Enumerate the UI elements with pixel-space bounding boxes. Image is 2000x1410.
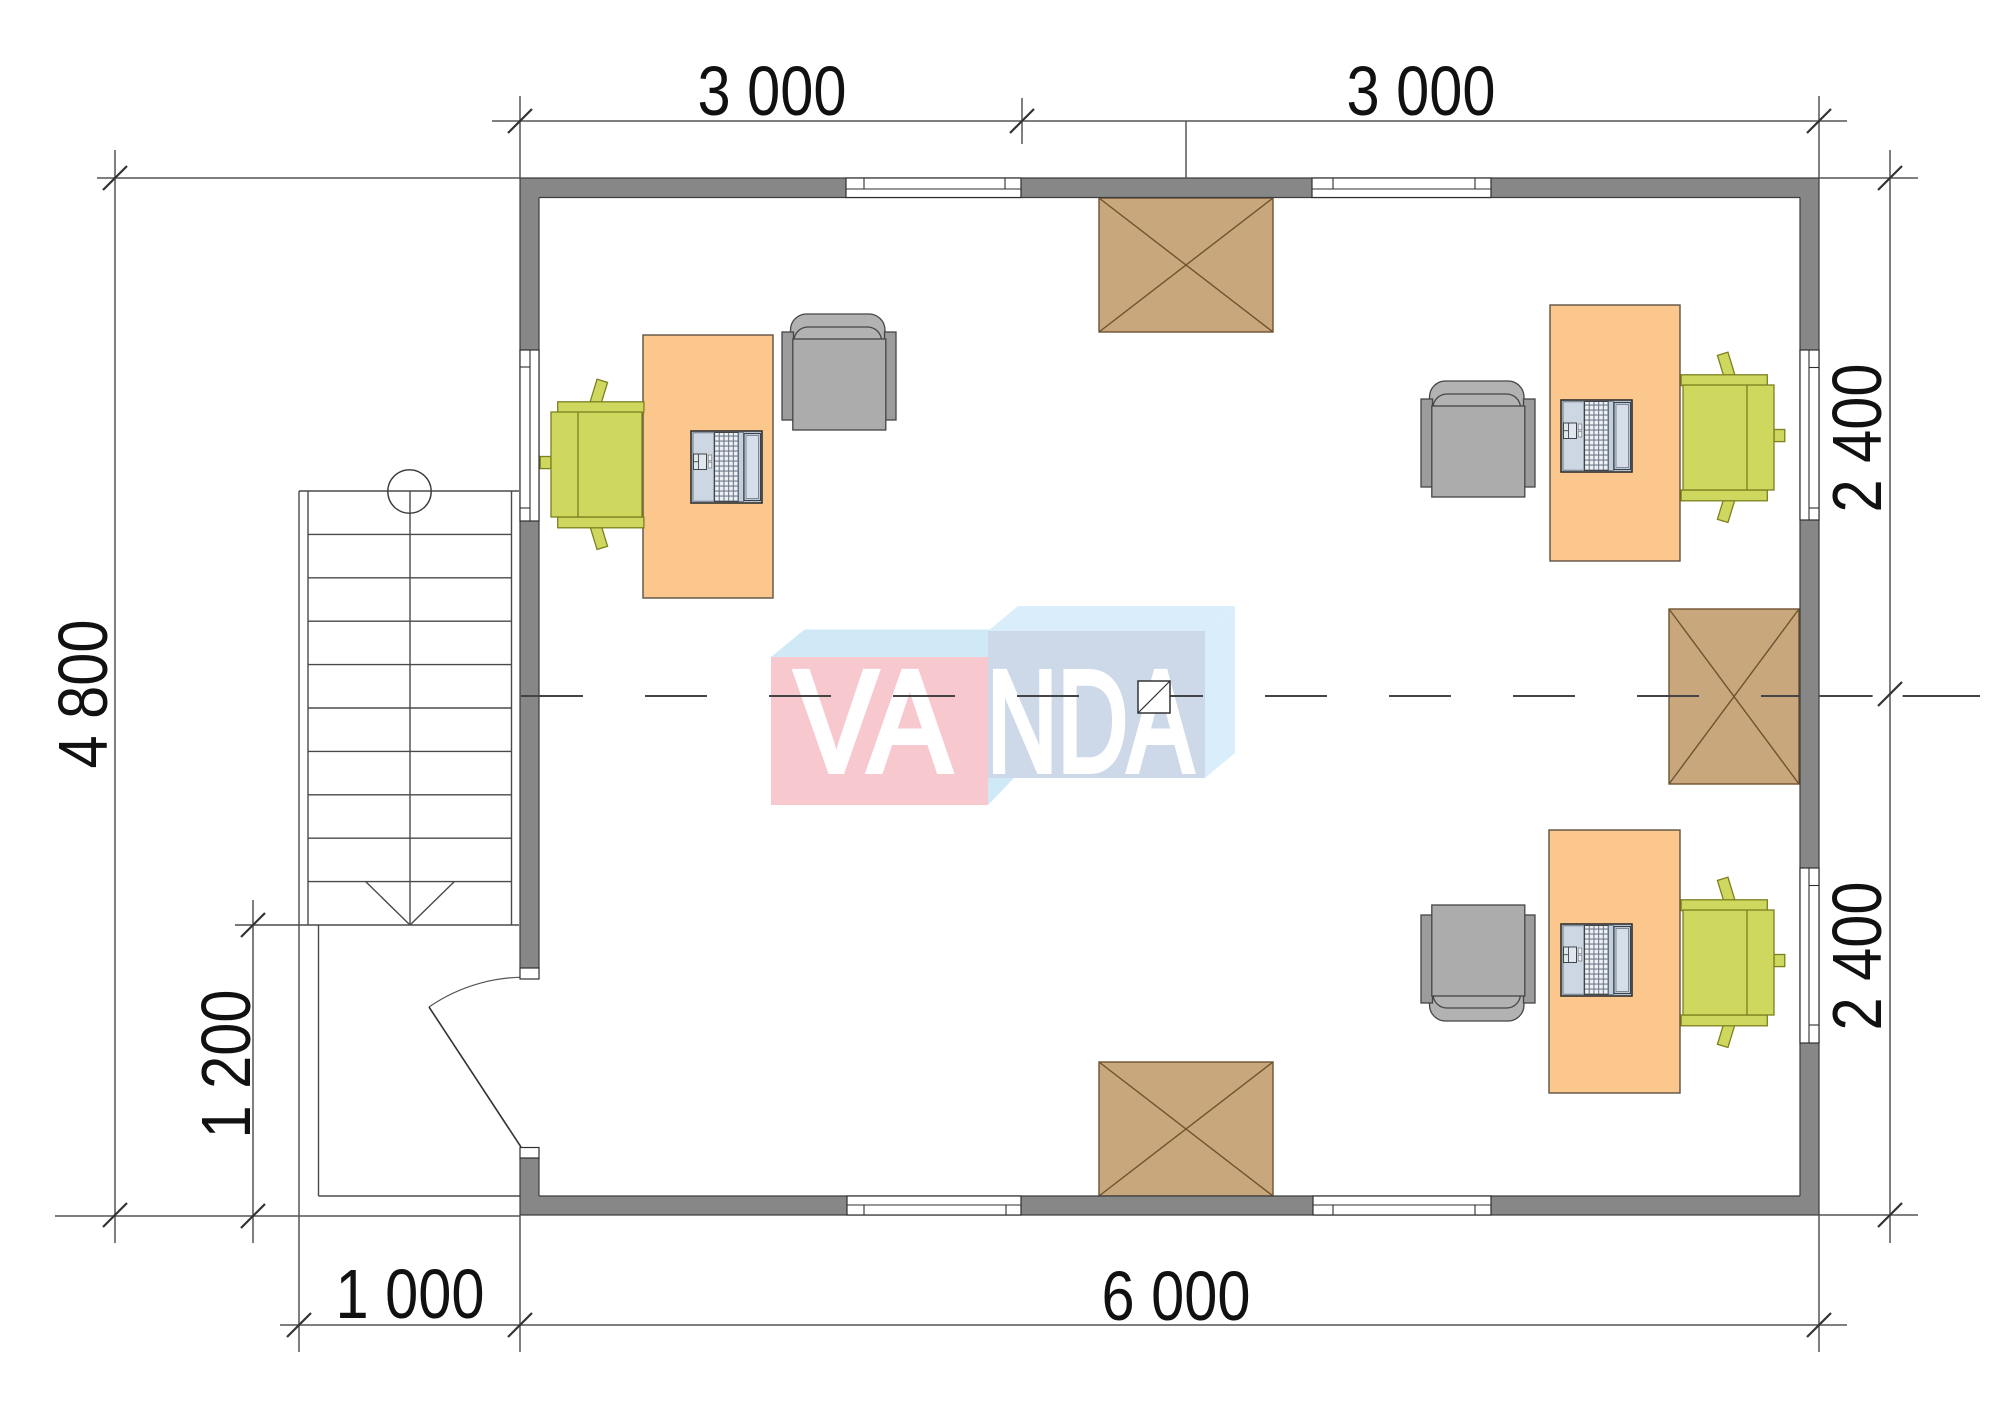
svg-text:6 000: 6 000 [1102, 1257, 1251, 1335]
svg-text:1 200: 1 200 [187, 990, 265, 1139]
svg-text:3 000: 3 000 [698, 52, 847, 130]
svg-text:2 400: 2 400 [1818, 364, 1896, 513]
svg-text:2 400: 2 400 [1818, 882, 1896, 1031]
svg-text:1 000: 1 000 [336, 1255, 485, 1333]
svg-text:NDA: NDA [987, 641, 1193, 802]
svg-text:4 800: 4 800 [44, 620, 122, 769]
svg-text:3 000: 3 000 [1347, 52, 1496, 130]
svg-text:VA: VA [795, 641, 951, 802]
